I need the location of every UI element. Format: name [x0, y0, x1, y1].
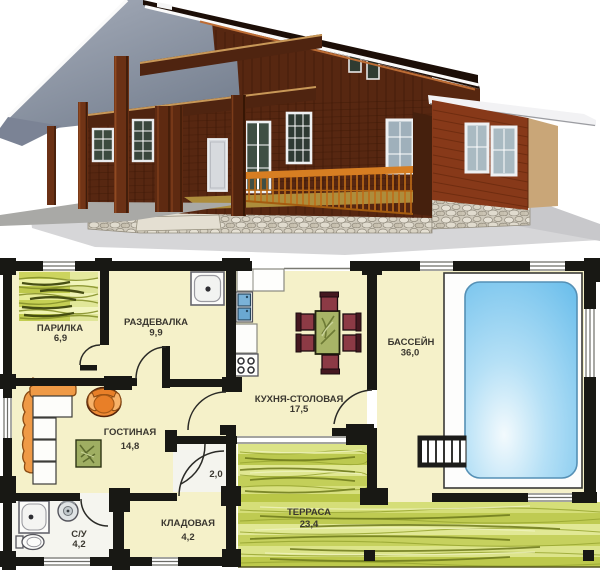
svg-text:ГОСТИНАЯ: ГОСТИНАЯ	[104, 427, 157, 438]
svg-text:РАЗДЕВАЛКА: РАЗДЕВАЛКА	[124, 317, 188, 328]
svg-text:17,5: 17,5	[290, 404, 309, 415]
svg-text:6,9: 6,9	[54, 333, 67, 344]
svg-text:4,2: 4,2	[181, 532, 194, 543]
svg-text:БАССЕЙН: БАССЕЙН	[388, 336, 435, 348]
svg-text:14,8: 14,8	[121, 441, 140, 452]
svg-text:23,4: 23,4	[300, 519, 319, 530]
svg-text:36,0: 36,0	[401, 348, 420, 359]
svg-text:4,2: 4,2	[72, 539, 85, 550]
svg-text:ТЕРРАСА: ТЕРРАСА	[287, 507, 331, 518]
svg-text:2,0: 2,0	[209, 469, 222, 480]
svg-text:9,9: 9,9	[149, 328, 162, 339]
svg-text:КЛАДОВАЯ: КЛАДОВАЯ	[161, 518, 215, 529]
